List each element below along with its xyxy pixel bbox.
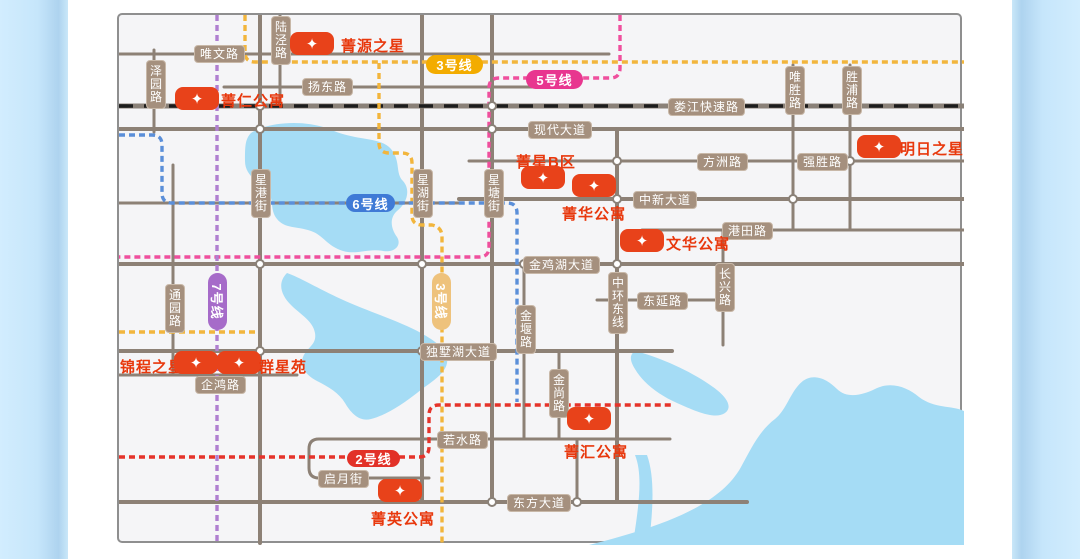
road-label-zhonghuan: 中环东线 [608, 272, 628, 334]
property-marker-jingyuanzhixing[interactable]: ✦ [290, 32, 334, 55]
page-side-panel-left [0, 0, 68, 559]
channel [633, 455, 653, 543]
road-label-yangdong: 扬东路 [302, 78, 353, 96]
property-marker-qunxingyuan[interactable]: ✦ [217, 351, 261, 374]
road-label-zeyuan: 泽园路 [146, 60, 166, 109]
metro-line-7-badge: 7号线 [208, 273, 227, 330]
diamond-star-icon: ✦ [583, 410, 596, 428]
diamond-star-icon: ✦ [537, 169, 550, 187]
road-label-dongfang: 东方大道 [507, 494, 571, 512]
property-label-jinghui[interactable]: 菁汇公寓 [564, 441, 628, 462]
property-label-wenhua[interactable]: 文华公寓 [666, 233, 730, 254]
property-marker-jingren[interactable]: ✦ [175, 87, 219, 110]
road-label-dushuhu: 独墅湖大道 [420, 343, 497, 361]
road-label-xiandai: 现代大道 [528, 121, 592, 139]
road-label-fangzhou: 方洲路 [697, 153, 748, 171]
road-label-jinyan: 金堰路 [516, 305, 536, 354]
property-marker-wenhua[interactable]: ✦ [620, 229, 664, 252]
diamond-star-icon: ✦ [873, 138, 886, 156]
property-label-qunxingyuan[interactable]: 群星苑 [259, 356, 307, 377]
property-marker-jincheng[interactable]: ✦ [174, 351, 218, 374]
diamond-star-icon: ✦ [636, 232, 649, 250]
diamond-star-icon: ✦ [306, 35, 319, 53]
transit-property-map: 唯文路 扬东路 娄江快速路 现代大道 方洲路 强胜路 中新大道 港田路 金鸡湖大… [117, 13, 962, 543]
metro-line-5-badge: 5号线 [526, 70, 583, 89]
road-label-qihong: 企鸿路 [195, 376, 246, 394]
diamond-star-icon: ✦ [190, 354, 203, 372]
road-label-loujiang: 娄江快速路 [668, 98, 745, 116]
property-marker-jingxing-b[interactable]: ✦ [521, 166, 565, 189]
road-label-qiangsheng: 强胜路 [797, 153, 848, 171]
property-label-jingren[interactable]: 菁仁公寓 [221, 90, 285, 111]
road-label-changxing: 长兴路 [715, 263, 735, 312]
road-label-tongyuan: 通园路 [165, 284, 185, 333]
page-side-panel-right [1012, 0, 1080, 559]
road-label-weiwen: 唯文路 [194, 45, 245, 63]
road-label-shengpu: 胜浦路 [842, 66, 862, 115]
metro-line-3-badge: 3号线 [426, 55, 483, 74]
road-label-ruoshui: 若水路 [437, 431, 488, 449]
road-label-weisheng: 唯胜路 [785, 66, 805, 115]
road-label-xinggang: 星港街 [251, 169, 271, 218]
road-label-xingtang: 星塘街 [484, 169, 504, 218]
property-marker-jingying[interactable]: ✦ [378, 479, 422, 502]
property-marker-jinghua[interactable]: ✦ [572, 174, 616, 197]
property-label-jinghua[interactable]: 菁华公寓 [562, 203, 626, 224]
diamond-star-icon: ✦ [233, 354, 246, 372]
road-label-jinjihu: 金鸡湖大道 [523, 256, 600, 274]
property-label-mingrizhixing[interactable]: 明日之星 [900, 138, 964, 159]
metro-line-2-badge: 2号线 [347, 450, 400, 467]
property-marker-mingrizhixing[interactable]: ✦ [857, 135, 901, 158]
road-label-xinghu: 星湖街 [413, 169, 433, 218]
diamond-star-icon: ✦ [191, 90, 204, 108]
diamond-star-icon: ✦ [394, 482, 407, 500]
metro-line-3-vertical-badge: 3号线 [432, 273, 451, 330]
road-label-qiyue: 启月街 [318, 470, 369, 488]
metro-line-6-badge: 6号线 [346, 194, 395, 212]
road-label-lujing: 陆泾路 [271, 16, 291, 65]
diamond-star-icon: ✦ [588, 177, 601, 195]
road-label-jinshang: 金尚路 [549, 369, 569, 418]
road-label-dongyan: 东延路 [637, 292, 688, 310]
property-label-jingying[interactable]: 菁英公寓 [371, 508, 435, 529]
property-label-jingyuanzhixing[interactable]: 菁源之星 [341, 35, 405, 56]
road-label-zhongxin: 中新大道 [633, 191, 697, 209]
property-marker-jinghui[interactable]: ✦ [567, 407, 611, 430]
